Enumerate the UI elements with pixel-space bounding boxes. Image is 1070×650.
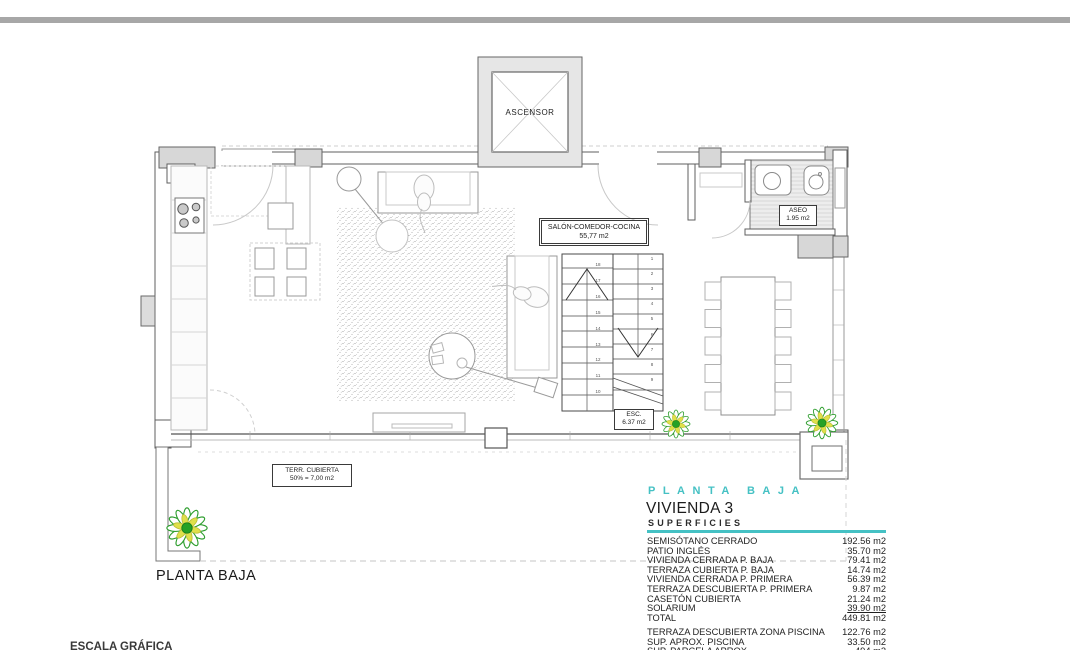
graphic-scale-label: ESCALA GRÁFICA — [70, 641, 172, 650]
surfaces-table: SEMISÓTANO CERRADO192.56 m2PATIO INGLÉS3… — [647, 537, 886, 623]
stair-tread-number: 12 — [592, 357, 604, 362]
surface-label: TOTAL — [647, 614, 676, 624]
stair-tread-number: 1 — [646, 256, 658, 261]
terraza-area: 50% = 7,00 m2 — [273, 475, 351, 483]
panel-subtitle: VIVIENDA 3 — [646, 500, 733, 518]
stairs-label-box: ESC. 6.37 m2 — [614, 409, 654, 430]
surface-value: 449.81 m2 — [842, 614, 886, 624]
stair-tread-number: 7 — [646, 347, 658, 352]
page: ASCENSOR SALÓN-COMEDOR-COCINA 55,77 m2 A… — [0, 0, 1070, 650]
sink-icon — [804, 166, 829, 195]
stair-tread-number: 13 — [592, 342, 604, 347]
stair-tread-number: 6 — [646, 332, 658, 337]
stair-tread-number: 18 — [592, 262, 604, 267]
stair-tread-number: 16 — [592, 294, 604, 299]
panel-title: PLANTA BAJA — [648, 485, 807, 497]
stair-tread-number: 3 — [646, 286, 658, 291]
stair-tread-number: 2 — [646, 271, 658, 276]
stair-tread-number: 10 — [592, 389, 604, 394]
stair-tread-number: 17 — [592, 278, 604, 283]
stair-tread-number: 15 — [592, 310, 604, 315]
floor-plan-drawing — [0, 0, 1070, 650]
panel-section-label: SUPERFICIES — [648, 518, 743, 528]
stair-tread-number: 4 — [646, 301, 658, 306]
floor-name-label: PLANTA BAJA — [156, 568, 256, 584]
salon-area: 55,77 m2 — [542, 232, 646, 241]
sofa-right — [507, 256, 557, 378]
dining-table — [705, 277, 791, 415]
salon-label-box: SALÓN-COMEDOR-COCINA 55,77 m2 — [541, 220, 647, 244]
aseo-label-box: ASEO 1.95 m2 — [779, 205, 817, 226]
salon-label: SALÓN-COMEDOR-COCINA — [542, 223, 646, 232]
ascensor-label: ASCENSOR — [492, 108, 568, 117]
surface-row: TOTAL449.81 m2 — [647, 614, 886, 624]
stair-tread-number: 9 — [646, 377, 658, 382]
aseo-area: 1.95 m2 — [780, 215, 816, 223]
tv-bench — [373, 413, 465, 432]
stairs-label: ESC. — [615, 411, 653, 419]
east-glass-wall — [829, 236, 848, 432]
stair-tread-number: 14 — [592, 326, 604, 331]
stove-icon — [175, 198, 204, 233]
aseo-label: ASEO — [780, 207, 816, 215]
stairs-area: 6.37 m2 — [615, 419, 653, 427]
surfaces-table-secondary: TERRAZA DESCUBIERTA ZONA PISCINA122.76 m… — [647, 628, 886, 650]
kitchen — [171, 166, 320, 430]
toilet-icon — [755, 165, 791, 195]
terraza-label: TERR. CUBIERTA — [273, 467, 351, 475]
stair-tread-number: 5 — [646, 316, 658, 321]
stair-tread-number: 11 — [592, 373, 604, 378]
living-room-rug — [337, 207, 515, 401]
stair-tread-number: 8 — [646, 362, 658, 367]
panel-accent-rule — [647, 530, 886, 533]
terraza-label-box: TERR. CUBIERTA 50% = 7,00 m2 — [272, 464, 352, 487]
south-glass-wall — [171, 428, 848, 452]
plant-icon — [167, 508, 207, 548]
